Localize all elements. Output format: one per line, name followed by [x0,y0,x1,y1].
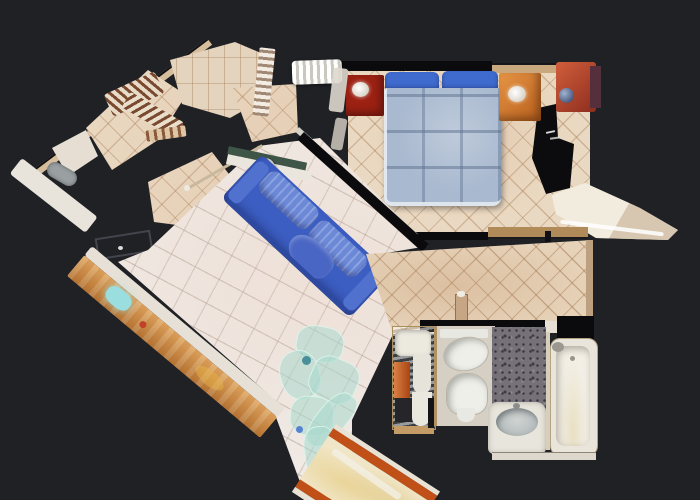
washbasin-faucet [513,403,520,409]
bathroom-cabinet-mirror [395,330,431,356]
bathroom-cabinet-white-curve [413,354,431,394]
nightstand-left-lamp [352,82,369,97]
bedroom-top-wall-tan [492,63,556,73]
double-bed-duvet [384,88,501,206]
scan-fragment-white [330,117,347,151]
bathroom-bottom-wall [492,452,596,460]
floorplan-canvas[interactable] [0,0,700,500]
bathtub-basin [556,346,590,446]
glass-panel-dot [118,246,123,250]
glass-speck-teal [302,356,311,365]
blue-ball [559,88,574,103]
glass-speck-blue [296,426,303,433]
bidet-stem [457,408,475,422]
washbasin-bowl [496,408,538,436]
bathtub-drain [570,356,575,361]
hallway-post-cap [457,291,465,297]
nightstand-right-lamp [508,86,526,102]
living-wall-knob [184,185,190,191]
bathtub-faucet [552,342,564,352]
far-right-cabinet-side [590,66,601,108]
bathroom-top-wall [557,316,594,340]
bedroom-top-wall [337,61,492,71]
bathroom-cabinet-orange [394,362,410,398]
bedroom-bottom-wall-tan [488,227,588,239]
